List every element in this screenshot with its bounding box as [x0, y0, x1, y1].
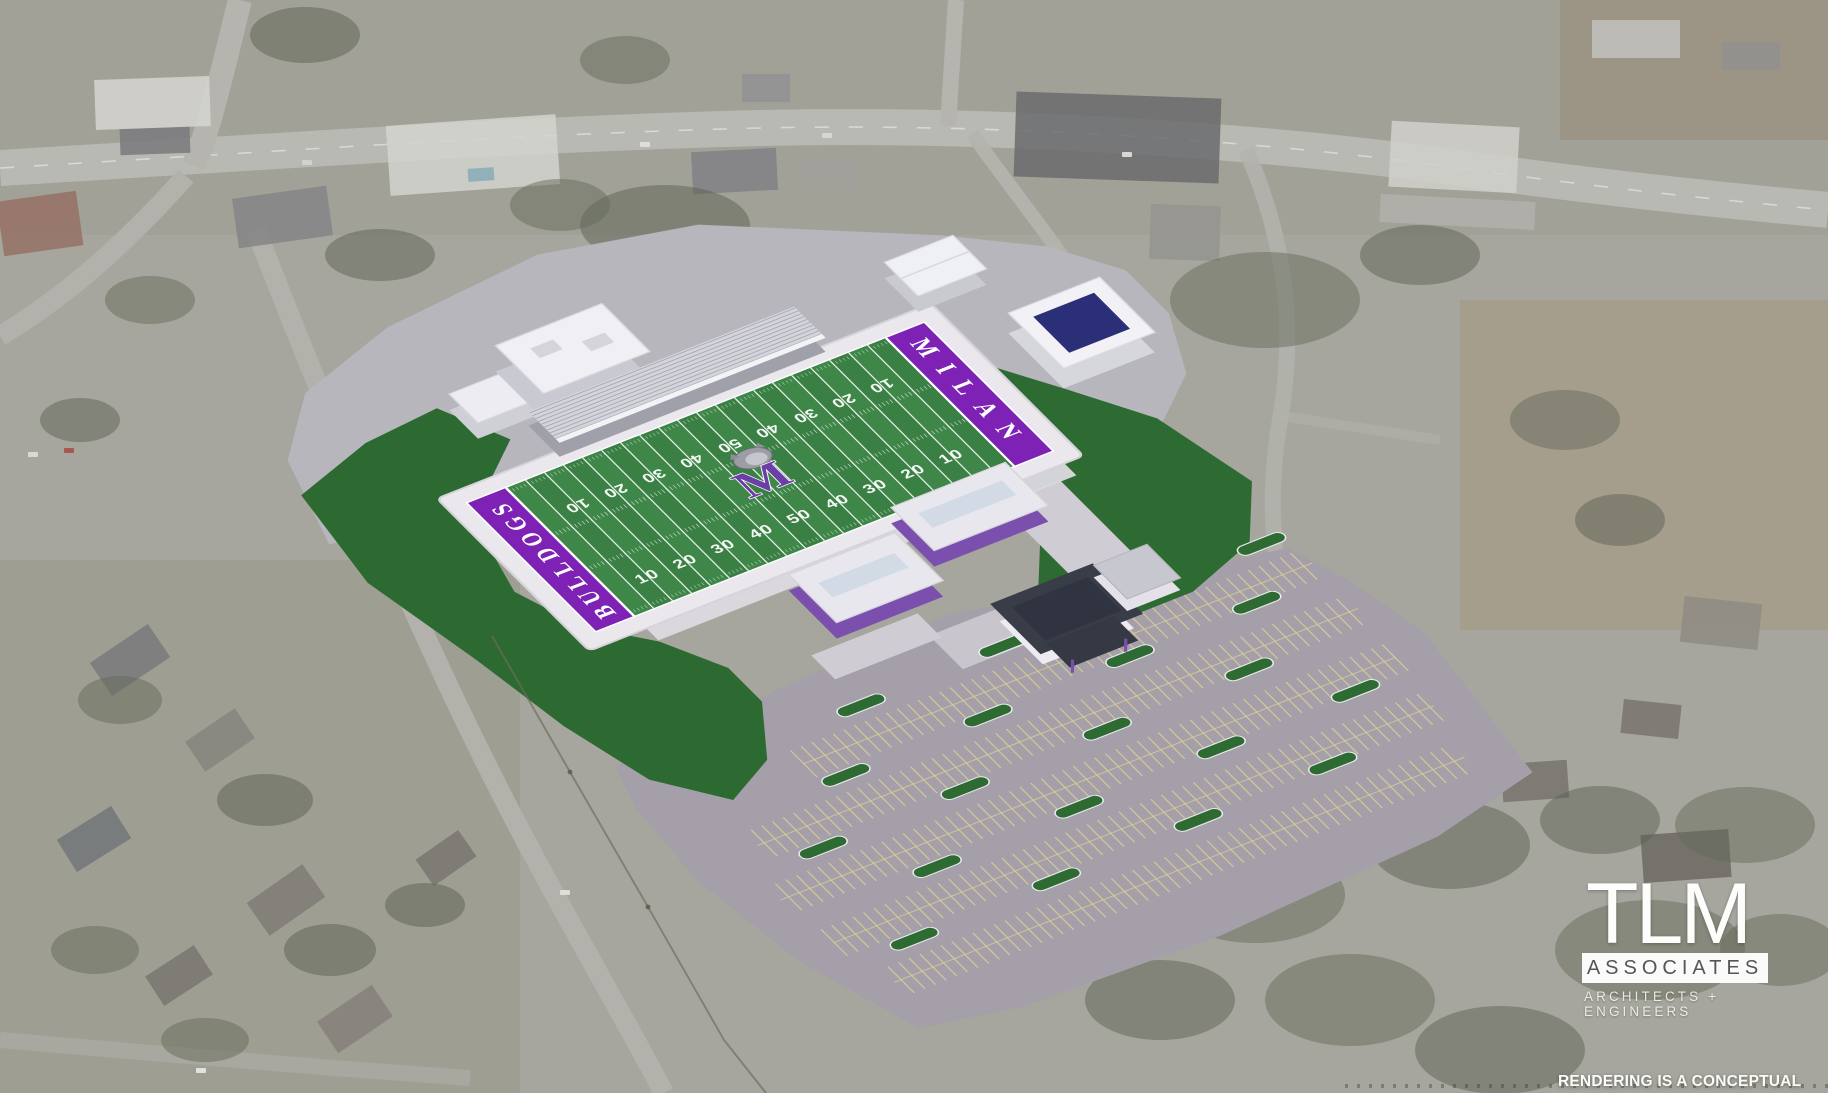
utility-pole	[568, 770, 573, 775]
disclaimer: RENDERING IS A CONCEPTUAL REPRESENTATION…	[1558, 1033, 1818, 1093]
brand-block: TLM ASSOCIATES ARCHITECTS + ENGINEERS RE…	[1558, 878, 1818, 1093]
site-rendering: BULLDOGS MILAN 1010202030304040505040403…	[0, 0, 1828, 1093]
site-rendering-canvas: BULLDOGS MILAN 1010202030304040505040403…	[0, 0, 1828, 1093]
tlm-logo: TLM	[1586, 878, 1818, 951]
architects-engineers-tagline: ARCHITECTS + ENGINEERS	[1584, 989, 1818, 1019]
associates-label: ASSOCIATES	[1587, 957, 1763, 979]
utility-pole	[646, 905, 651, 910]
associates-bar: ASSOCIATES	[1582, 953, 1768, 983]
disclaimer-line: RENDERING IS A CONCEPTUAL	[1558, 1072, 1818, 1091]
